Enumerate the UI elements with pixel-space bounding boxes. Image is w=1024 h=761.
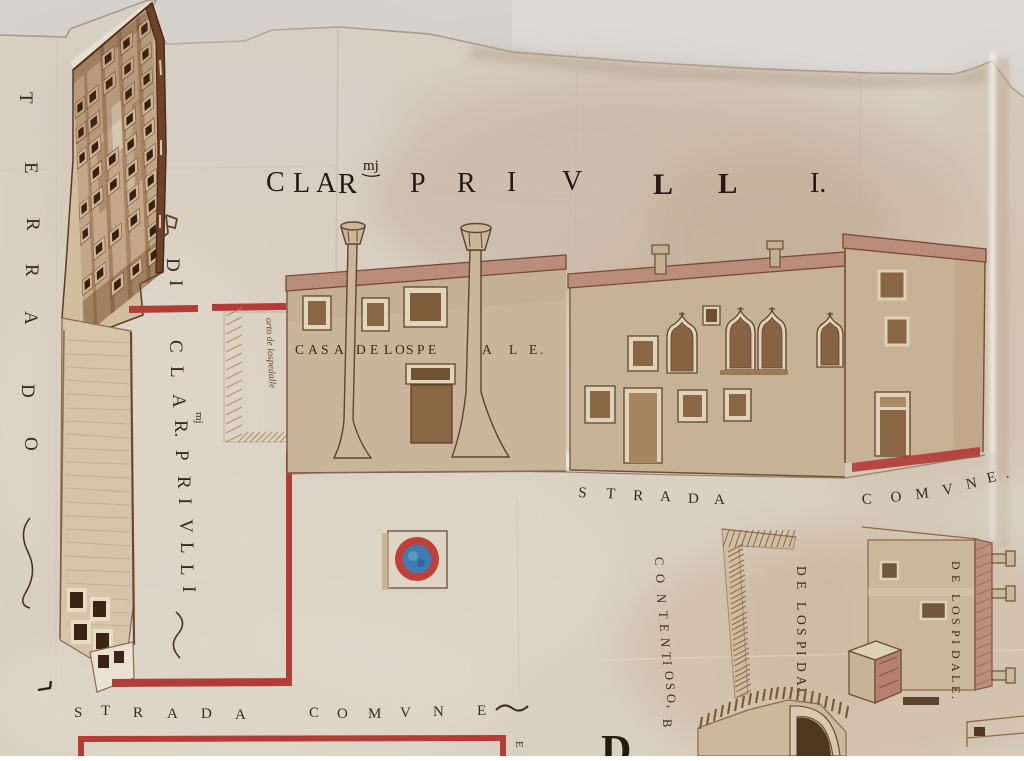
svg-text:C: C <box>266 167 285 198</box>
svg-text:S: S <box>321 342 329 357</box>
svg-text:E: E <box>657 624 671 632</box>
svg-text:I: I <box>660 661 674 665</box>
svg-text:A: A <box>308 342 318 357</box>
svg-text:L: L <box>293 168 310 199</box>
svg-text:A: A <box>20 311 41 325</box>
svg-text:P: P <box>417 342 425 357</box>
svg-text:R: R <box>633 488 644 504</box>
svg-text:L: L <box>176 542 197 554</box>
svg-text:T: T <box>659 652 673 660</box>
svg-text:A: A <box>168 394 189 408</box>
svg-text:P: P <box>410 168 426 199</box>
svg-text:N: N <box>654 594 668 603</box>
svg-text:A: A <box>334 342 344 357</box>
svg-text:E: E <box>428 342 436 357</box>
svg-text:P: P <box>949 630 963 637</box>
svg-text:B: B <box>660 719 674 727</box>
svg-text:S: S <box>578 485 587 502</box>
svg-text:O: O <box>20 437 41 451</box>
svg-text:O: O <box>794 615 809 625</box>
svg-text:D: D <box>688 491 699 507</box>
svg-text:N: N <box>658 638 672 647</box>
svg-text:O: O <box>662 671 676 680</box>
svg-text:L: L <box>794 602 809 610</box>
svg-text:A: A <box>482 342 492 357</box>
svg-text:R: R <box>173 476 194 489</box>
svg-text:M: M <box>368 706 381 722</box>
svg-text:D: D <box>601 728 631 756</box>
svg-text:P: P <box>794 641 809 649</box>
svg-text:E: E <box>949 575 963 582</box>
svg-text:V: V <box>175 519 196 533</box>
svg-text:T: T <box>15 92 36 104</box>
svg-text:S: S <box>949 618 963 625</box>
svg-text:D: D <box>356 342 366 357</box>
svg-text:D: D <box>17 384 38 398</box>
svg-text:.: . <box>352 176 357 198</box>
svg-text:O: O <box>949 606 963 615</box>
svg-text:V: V <box>562 166 582 197</box>
svg-text:S: S <box>74 705 82 721</box>
svg-text:R: R <box>21 264 42 277</box>
svg-text:D: D <box>794 662 809 672</box>
svg-text:A: A <box>794 676 809 686</box>
svg-text:S: S <box>663 683 677 690</box>
svg-text:I: I <box>165 280 186 286</box>
svg-text:S: S <box>794 628 809 636</box>
svg-text:E: E <box>794 581 809 589</box>
svg-text:E: E <box>370 342 378 357</box>
svg-text:T: T <box>656 611 670 619</box>
svg-text:C: C <box>861 491 872 508</box>
svg-text:L: L <box>949 675 963 682</box>
svg-text:mj: mj <box>193 412 205 424</box>
svg-text:I: I <box>174 498 195 504</box>
svg-text:L: L <box>949 594 963 601</box>
svg-text:L: L <box>653 168 673 201</box>
svg-text:D: D <box>201 706 212 722</box>
svg-text:A: A <box>235 707 246 723</box>
svg-text:T: T <box>606 486 616 502</box>
svg-text:E: E <box>20 162 41 174</box>
svg-text:O: O <box>337 706 348 722</box>
svg-text:A: A <box>660 489 671 505</box>
svg-text:I: I <box>507 167 516 198</box>
svg-text:N: N <box>433 704 444 720</box>
svg-text:O: O <box>890 489 902 506</box>
svg-text:A: A <box>167 706 178 722</box>
svg-text:A: A <box>316 168 337 199</box>
svg-text:L: L <box>176 564 197 576</box>
svg-text:R: R <box>457 168 476 199</box>
svg-text:I: I <box>949 640 963 644</box>
svg-text:R.: R. <box>170 420 191 437</box>
svg-text:O: O <box>653 574 667 583</box>
svg-text:L: L <box>166 366 187 378</box>
svg-text:C: C <box>309 705 319 721</box>
svg-text:D: D <box>949 561 963 570</box>
svg-text:D: D <box>162 258 183 272</box>
svg-text:E: E <box>513 741 525 748</box>
svg-text:I.: I. <box>810 168 826 199</box>
svg-text:D: D <box>949 650 963 659</box>
svg-text:L: L <box>509 342 517 357</box>
svg-text:E: E <box>949 686 963 693</box>
svg-text:mj: mj <box>363 158 379 174</box>
svg-text:,: , <box>665 705 679 708</box>
svg-text:M: M <box>915 485 930 503</box>
svg-text:E: E <box>529 342 537 357</box>
svg-text:C: C <box>295 342 304 357</box>
svg-text:L: L <box>718 168 737 200</box>
svg-text:O: O <box>395 342 405 357</box>
svg-text:R: R <box>22 218 43 231</box>
svg-text:I: I <box>794 651 809 656</box>
svg-text:.: . <box>540 342 543 357</box>
svg-text:D: D <box>794 566 809 576</box>
svg-text:A: A <box>949 663 963 672</box>
svg-text:P: P <box>171 450 192 461</box>
svg-text:O: O <box>664 694 678 703</box>
svg-text:L: L <box>384 342 392 357</box>
svg-text:E: E <box>477 703 486 719</box>
svg-text:V: V <box>400 705 411 721</box>
svg-text:T: T <box>101 703 110 719</box>
svg-text:A: A <box>714 492 725 508</box>
svg-text:R: R <box>133 705 143 721</box>
svg-text:C: C <box>652 557 666 565</box>
svg-text:I: I <box>178 586 199 592</box>
svg-text:S: S <box>406 342 414 357</box>
svg-text:.: . <box>949 696 963 699</box>
svg-text:C: C <box>165 340 186 353</box>
